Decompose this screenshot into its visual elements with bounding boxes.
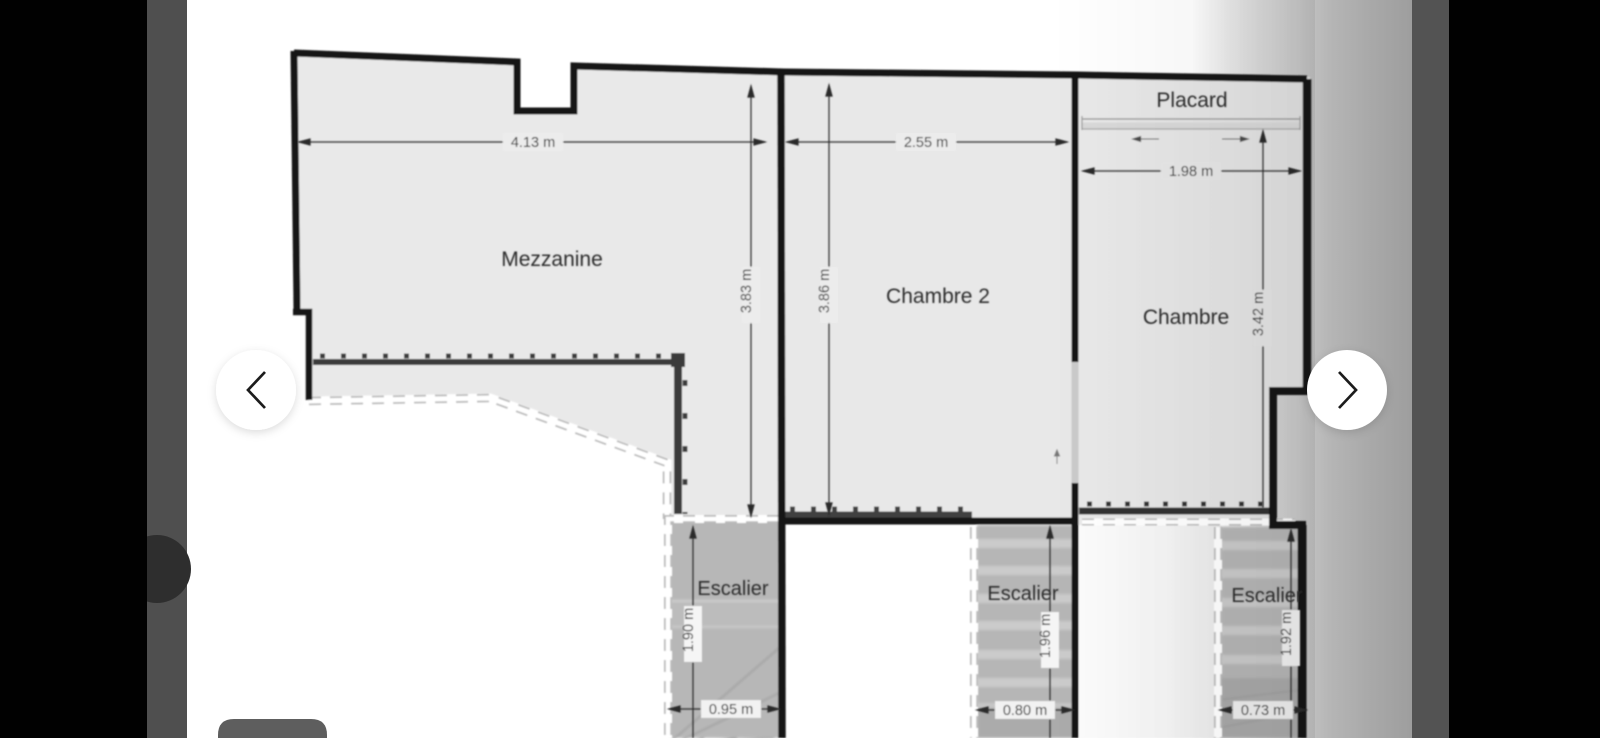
- svg-text:0.95 m: 0.95 m: [709, 702, 753, 718]
- svg-text:Chambre 2: Chambre 2: [886, 285, 990, 308]
- svg-text:4.13 m: 4.13 m: [511, 135, 555, 151]
- svg-text:0.80 m: 0.80 m: [1003, 703, 1047, 719]
- svg-text:Escalier: Escalier: [987, 583, 1058, 605]
- svg-text:1.90 m: 1.90 m: [681, 608, 697, 652]
- svg-text:Escalier: Escalier: [697, 578, 768, 600]
- svg-text:2.55 m: 2.55 m: [904, 135, 948, 151]
- svg-text:Mezzanine: Mezzanine: [501, 248, 603, 271]
- svg-text:3.83 m: 3.83 m: [739, 269, 755, 313]
- svg-text:3.86 m: 3.86 m: [817, 269, 833, 313]
